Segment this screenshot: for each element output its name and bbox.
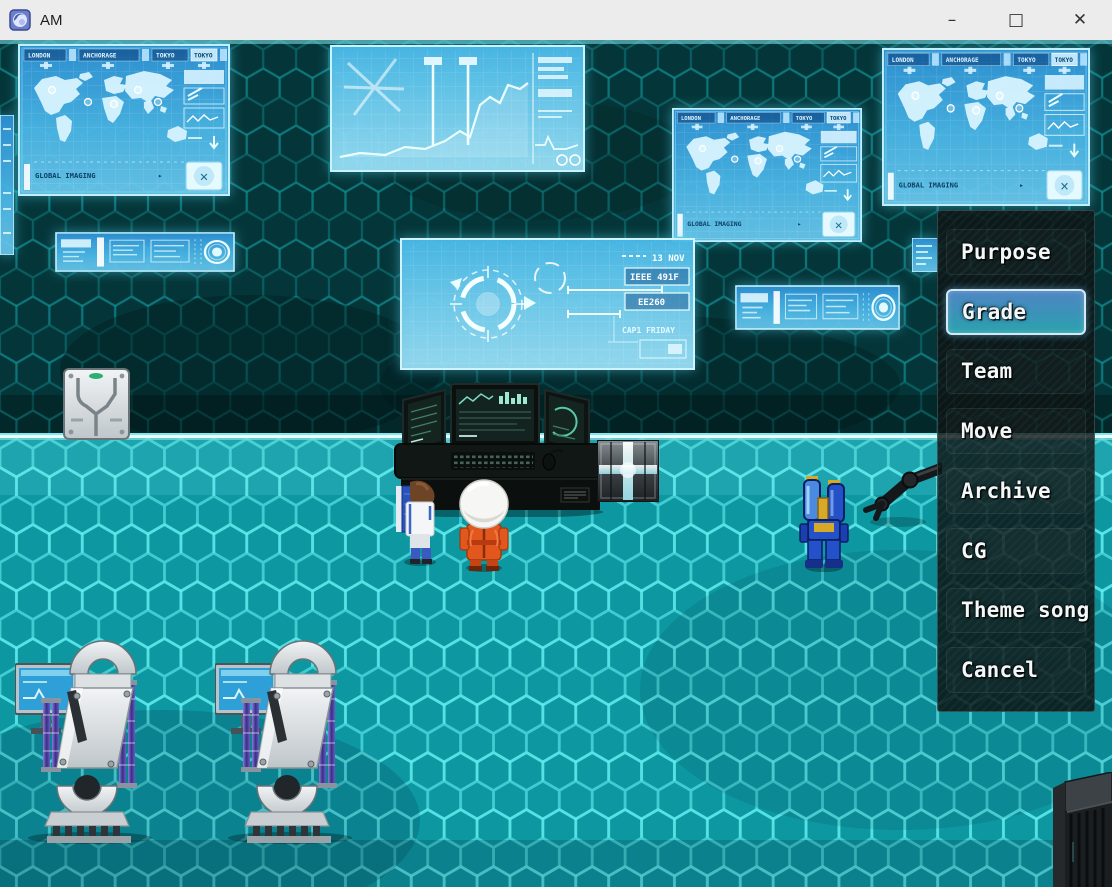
game-scene[interactable]: LONDON ANCHORAGE TOKYO TOKYO [0, 40, 1112, 887]
corner-console [1053, 772, 1112, 887]
close-button[interactable]: ✕ [1048, 0, 1112, 40]
menu-item-cg[interactable]: CG [946, 528, 1086, 574]
lab-machine-1 [15, 640, 165, 845]
menu-item-archive[interactable]: Archive [946, 468, 1086, 514]
holo-control-panel: 13 NOV IEEE 491F EE260 CAP1 FRIDAY [400, 238, 695, 370]
holo-map-screen-topleft [18, 44, 230, 196]
menu-item-move[interactable]: Move [946, 408, 1086, 454]
teleporter-tile [597, 440, 659, 502]
menu-item-theme-song-label: Theme song [961, 598, 1089, 622]
menu-item-grade-label: Grade [962, 300, 1026, 324]
panel-code-3: CAP1 FRIDAY [622, 326, 675, 335]
menu-item-team-label: Team [961, 359, 1012, 383]
wall-door [63, 368, 130, 440]
maximize-button[interactable]: □ [984, 0, 1048, 40]
menu-item-cg-label: CG [961, 539, 987, 563]
holo-banner-left [55, 232, 235, 272]
menu-item-theme-song[interactable]: Theme song [946, 588, 1086, 634]
robot-arm [852, 458, 942, 528]
menu-item-cancel[interactable]: Cancel [946, 647, 1086, 693]
command-menu: Purpose Grade Team Move Archive CG Theme… [937, 210, 1095, 712]
holo-map-screen-topright [882, 48, 1090, 206]
minimize-button[interactable]: – [920, 0, 984, 40]
window-title: AM [40, 12, 63, 29]
panel-code-1: IEEE 491F [630, 273, 679, 283]
holo-map-screen-midright [672, 108, 862, 242]
menu-item-move-label: Move [961, 419, 1012, 443]
menu-item-purpose[interactable]: Purpose [946, 229, 1086, 275]
holo-edge-strip [0, 115, 14, 255]
panel-code-2: EE260 [638, 298, 665, 308]
holo-banner-partial [912, 238, 938, 272]
character-doctor [396, 480, 442, 566]
lab-machine-2 [215, 640, 365, 845]
character-orange-suit [455, 478, 513, 572]
holo-corner-panel [0, 283, 48, 333]
window-controls: – □ ✕ [920, 0, 1112, 40]
title-bar: AM – □ ✕ [0, 0, 1112, 40]
menu-item-archive-label: Archive [961, 479, 1051, 503]
menu-item-team[interactable]: Team [946, 349, 1086, 395]
app-icon [9, 9, 31, 31]
menu-item-grade[interactable]: Grade [946, 289, 1086, 335]
mech-robot [798, 476, 850, 572]
menu-item-cancel-label: Cancel [961, 658, 1038, 682]
menu-item-purpose-label: Purpose [961, 240, 1051, 264]
panel-date-text: 13 NOV [652, 254, 685, 264]
holo-banner-right [735, 285, 900, 330]
holo-chart-screen [330, 45, 585, 172]
game-window: AM – □ ✕ [0, 0, 1112, 887]
